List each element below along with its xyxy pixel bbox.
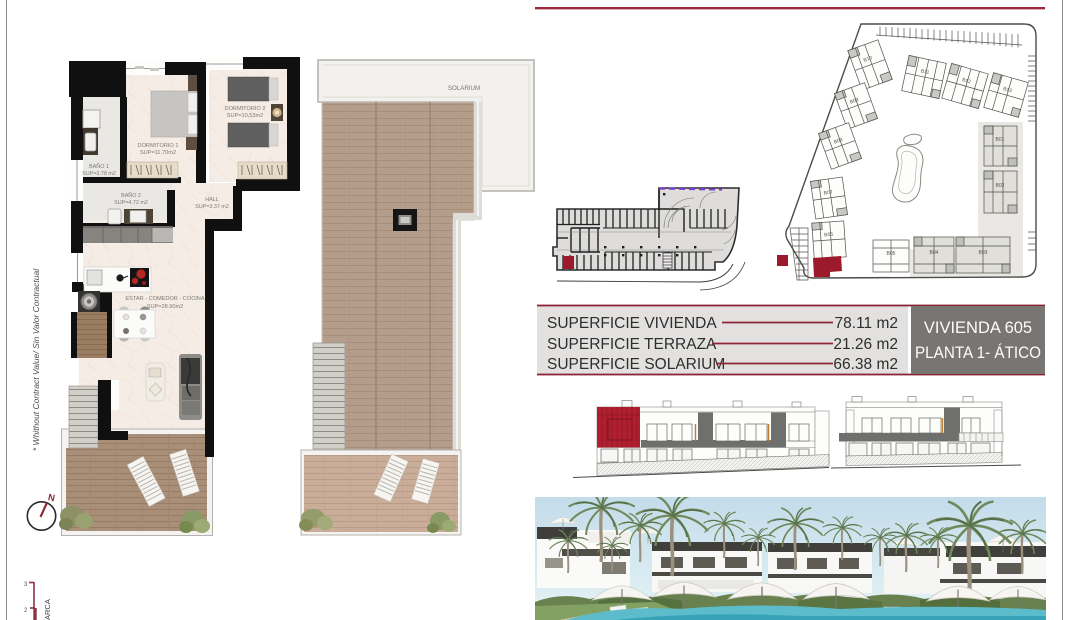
svg-text:BAÑO 2: BAÑO 2: [121, 192, 141, 199]
svg-text:SUPERFICIE SOLARIUM: SUPERFICIE SOLARIUM: [547, 356, 725, 373]
svg-text:SUP=28.90m2: SUP=28.90m2: [147, 304, 184, 310]
svg-text:* Whithout Contract Value/ Sin: * Whithout Contract Value/ Sin Valor Con…: [31, 268, 41, 451]
svg-text:VIVIENDA 605: VIVIENDA 605: [924, 319, 1032, 337]
svg-text:BAÑO 1: BAÑO 1: [89, 163, 109, 170]
svg-text:SUPERFICIE TERRAZA: SUPERFICIE TERRAZA: [547, 336, 717, 353]
svg-text:SUP=10,53m2: SUP=10,53m2: [227, 113, 264, 119]
svg-text:PLANTA 1- ÁTICO: PLANTA 1- ÁTICO: [915, 343, 1041, 362]
svg-text:B06: B06: [824, 232, 834, 239]
svg-text:B03: B03: [979, 250, 988, 256]
svg-text:SUP=11.70m2: SUP=11.70m2: [140, 150, 176, 156]
svg-text:B04: B04: [930, 250, 939, 256]
svg-text:B01: B01: [996, 137, 1005, 143]
svg-text:DORMITORIO 1: DORMITORIO 1: [138, 143, 179, 149]
svg-text:DORMITORIO 2: DORMITORIO 2: [225, 106, 266, 112]
svg-text:78.11 m2: 78.11 m2: [835, 315, 898, 332]
svg-text:B02: B02: [996, 183, 1005, 189]
svg-text:B05: B05: [887, 251, 896, 257]
svg-text:SUP=4.72 m2: SUP=4.72 m2: [114, 200, 148, 206]
svg-text:ARCA: ARCA: [43, 599, 52, 620]
svg-text:21.26 m2: 21.26 m2: [833, 336, 898, 353]
svg-text:SOLARIUM: SOLARIUM: [448, 85, 480, 92]
svg-text:HALL: HALL: [205, 197, 219, 203]
svg-text:SUP=3.78 m2: SUP=3.78 m2: [82, 171, 116, 177]
svg-text:ESTAR - COMEDOR - COCINA: ESTAR - COMEDOR - COCINA: [125, 296, 204, 302]
svg-text:66.38 m2: 66.38 m2: [833, 356, 898, 373]
svg-text:SUPERFICIE VIVIENDA: SUPERFICIE VIVIENDA: [547, 315, 717, 332]
svg-text:B07: B07: [823, 189, 833, 196]
svg-text:SUP=3.37 m2: SUP=3.37 m2: [195, 204, 229, 210]
